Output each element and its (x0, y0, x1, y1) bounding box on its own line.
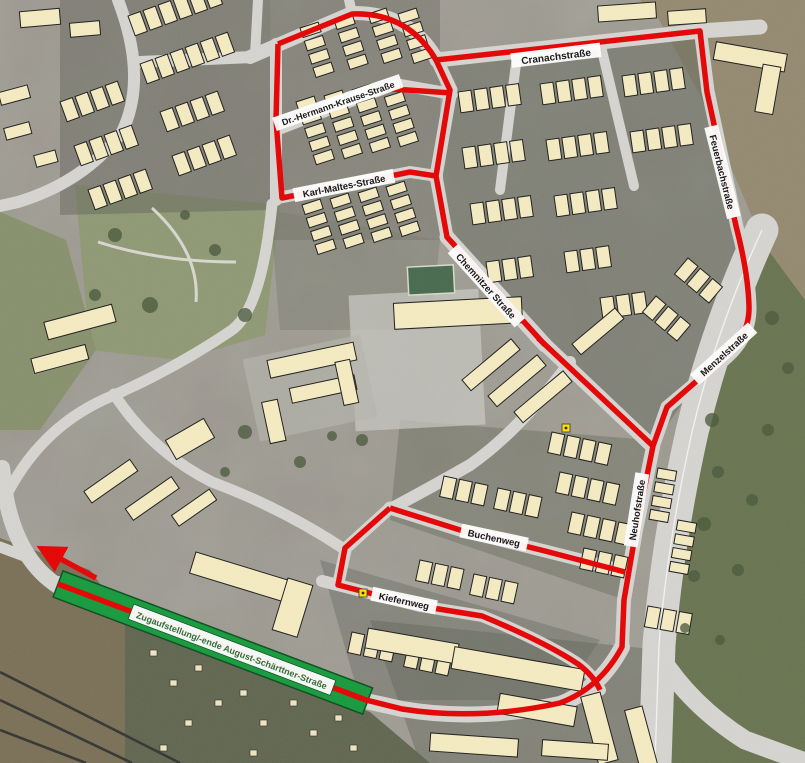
map-canvas: Zugaufstellung/-ende August-Schärttner-S… (0, 0, 805, 763)
grain-overlay (0, 0, 805, 763)
aerial-route-map: Zugaufstellung/-ende August-Schärttner-S… (0, 0, 805, 763)
